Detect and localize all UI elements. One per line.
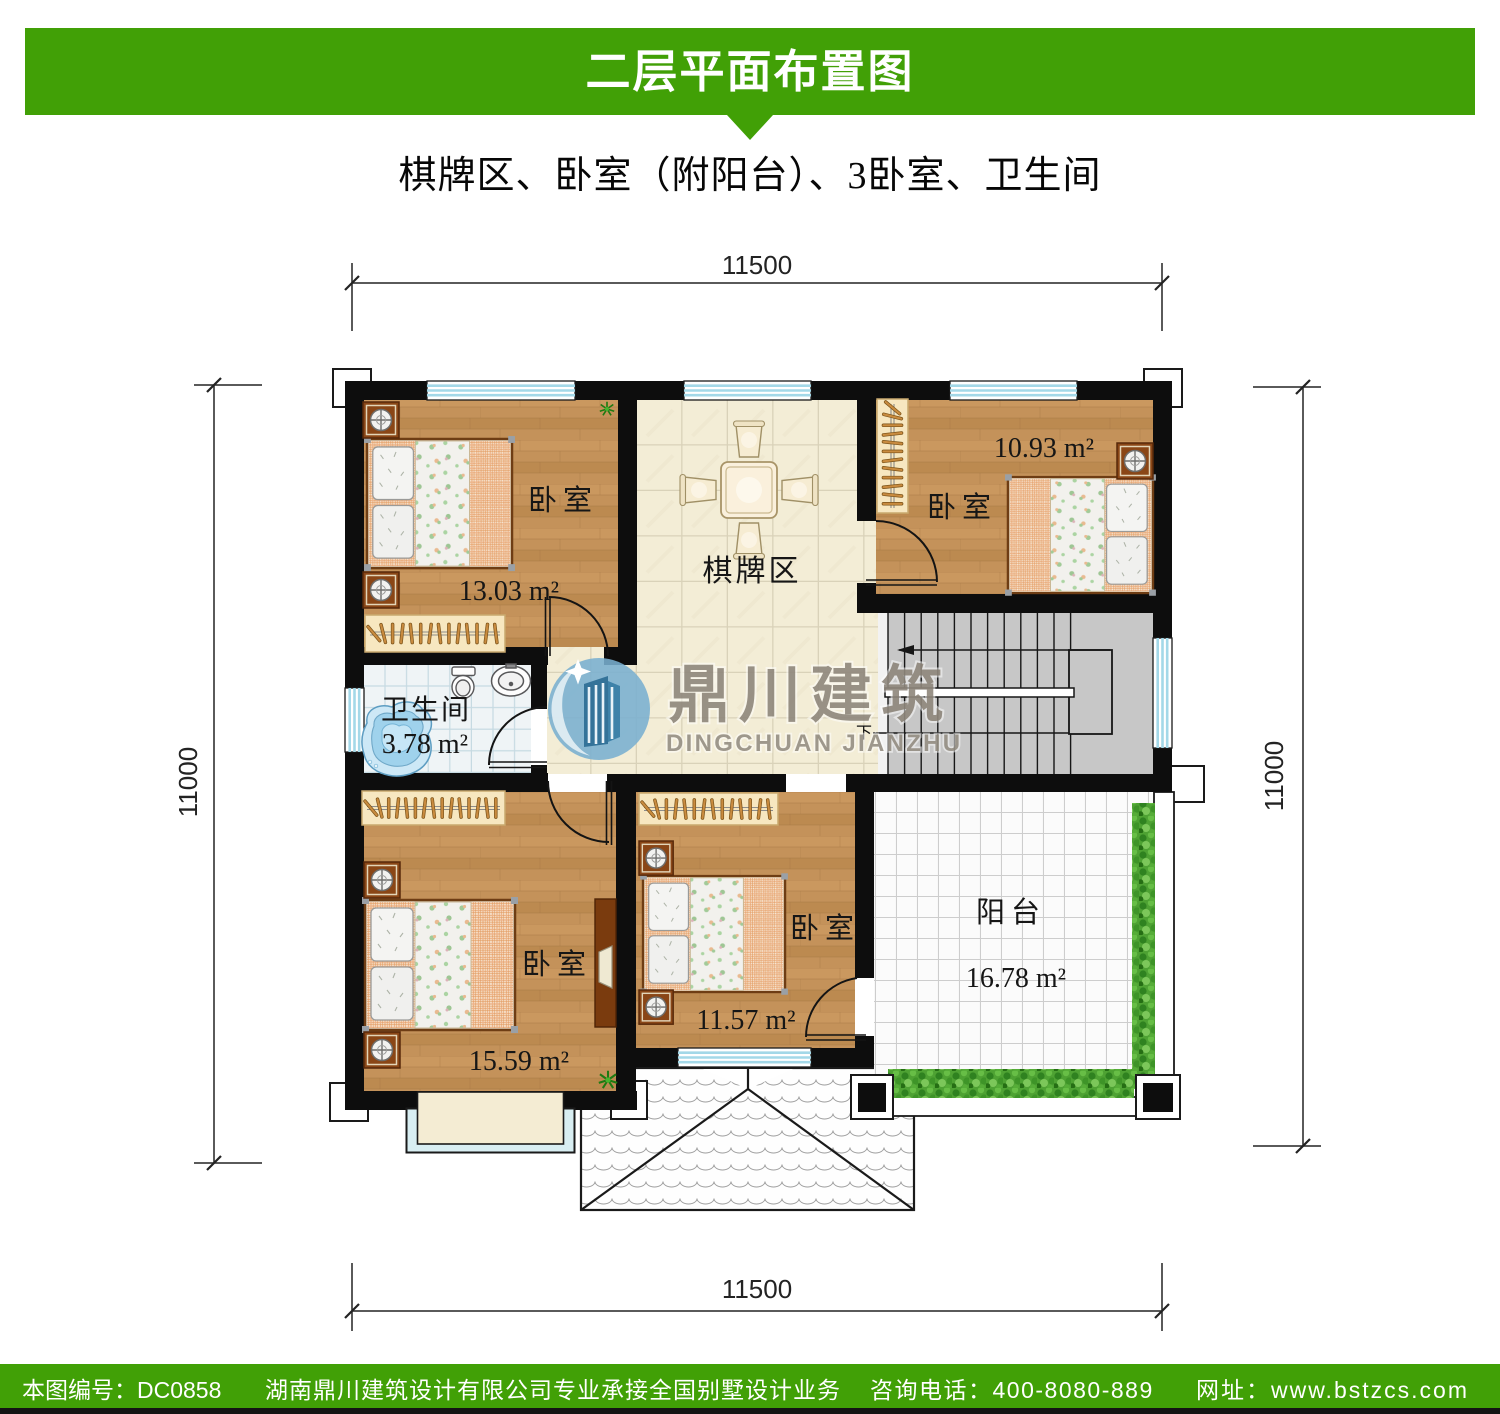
svg-text:卧室: 卧室 bbox=[927, 491, 997, 524]
svg-text:11500: 11500 bbox=[722, 250, 792, 280]
svg-text:13.03 m²: 13.03 m² bbox=[459, 576, 559, 607]
svg-text:卧室: 卧室 bbox=[528, 484, 598, 517]
svg-text:11500: 11500 bbox=[722, 1274, 792, 1304]
svg-text:15.59 m²: 15.59 m² bbox=[469, 1046, 569, 1077]
svg-text:棋牌区: 棋牌区 bbox=[703, 555, 802, 588]
svg-text:DINGCHUAN JIANZHU: DINGCHUAN JIANZHU bbox=[666, 730, 962, 757]
svg-text:16.78 m²: 16.78 m² bbox=[966, 963, 1066, 994]
svg-text:鼎川建筑: 鼎川建筑 bbox=[668, 661, 952, 730]
svg-text:阳台: 阳台 bbox=[976, 896, 1046, 929]
svg-text:11000: 11000 bbox=[1259, 741, 1289, 811]
svg-text:卫生间: 卫生间 bbox=[381, 694, 471, 726]
svg-text:11.57 m²: 11.57 m² bbox=[696, 1005, 795, 1036]
svg-text:11000: 11000 bbox=[173, 747, 203, 817]
svg-text:3.78 m²: 3.78 m² bbox=[382, 729, 468, 760]
svg-text:卧室: 卧室 bbox=[790, 912, 860, 945]
svg-text:10.93 m²: 10.93 m² bbox=[994, 433, 1094, 464]
svg-text:卧室: 卧室 bbox=[522, 948, 592, 981]
